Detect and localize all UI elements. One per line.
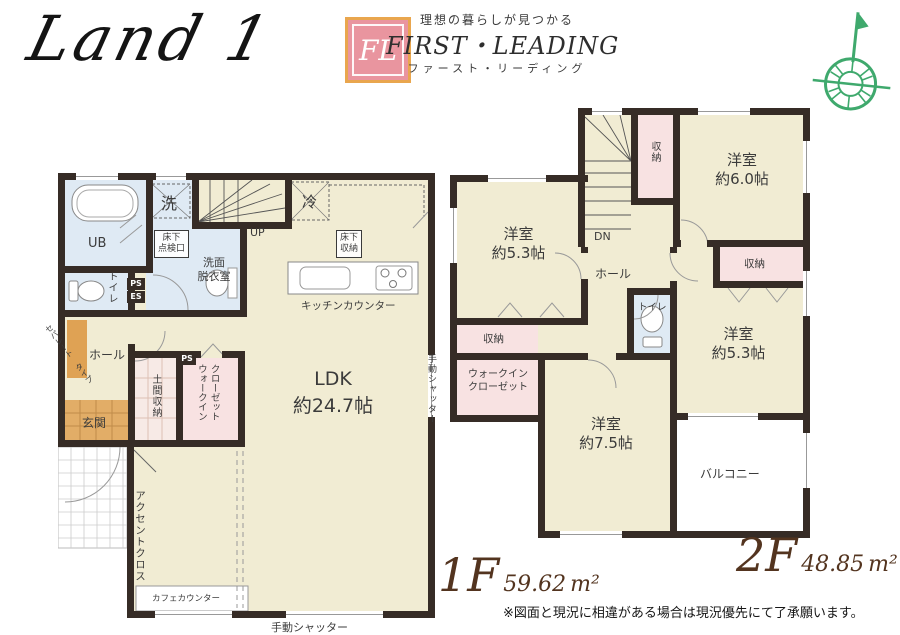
room-label-balcony: バルコニー [700, 465, 760, 482]
room-label-wic-2f: ウォークイン クローゼット [460, 369, 536, 394]
room-label-ldk: LDK 約24.7帖 [268, 366, 398, 419]
room-label-storage-right: 収納 [744, 256, 765, 271]
room-label-ub: UB [88, 236, 106, 251]
underfloor-hatch-label: 床下 点検口 [154, 230, 189, 258]
brand-name-en: FIRST・LEADING [386, 26, 608, 61]
room-label-toilet-2f: トイレ [638, 299, 667, 313]
room-label-entrance: 玄関 [82, 414, 106, 431]
es-shaft-label: ES [127, 291, 145, 303]
room-label-storage-top: 収納 [647, 141, 662, 163]
floor2-area-label: 2F48.85m² [736, 528, 898, 582]
floorplan-flyer: Land 1 FL 理想の暮らしが見つかる FIRST・LEADING ファース… [0, 0, 900, 635]
stairs-dn-label: DN [594, 230, 611, 243]
floor2-area-value: 48.85 [801, 552, 864, 577]
room-label-hall-1f: ホール [89, 346, 125, 363]
room-label-53jo-right: 洋室 約5.3帖 [686, 325, 791, 363]
brand-name-ja: ファースト・リーディング [392, 60, 602, 76]
shutter-bottom-label: 手動シャッター [271, 619, 348, 635]
cafe-counter-label: カフェカウンター [152, 592, 220, 604]
kitchen-counter-label: キッチンカウンター [301, 298, 396, 313]
floor1-area-unit: m² [570, 572, 600, 597]
room-label-toilet-1f: トイレ [104, 271, 119, 304]
accent-cloth-label: アクセントクロス [133, 490, 148, 582]
shutter-right-label: 手動シャッター [425, 354, 438, 424]
room-label-6jo: 洋室 約6.0帖 [686, 151, 798, 189]
ps-shaft-label: PS [127, 278, 145, 290]
floor1-plan: UB 洗 洗面 脱衣室 床下 点検口 トイレ PS ES ホール セパレート タ… [58, 168, 435, 633]
room-label-washer: 洗 [161, 190, 177, 214]
room-label-storage-left: 収納 [483, 331, 504, 346]
room-label-75jo: 洋室 約7.5帖 [550, 415, 662, 453]
stairs-up-label: UP [250, 226, 265, 239]
room-label-laundry: 洗面 脱衣室 [188, 256, 240, 284]
plan-title: Land 1 [21, 2, 280, 75]
room-label-hall-2f: ホール [595, 265, 631, 282]
floor1-floor-number: 1F [438, 548, 499, 602]
room-label-doma-storage: 土間収納 [148, 374, 163, 418]
floor2-floor-number: 2F [736, 528, 797, 582]
floor1-area-label: 1F59.62m² [438, 548, 600, 602]
room-label-wic-1f: ウォークイン クローゼット [194, 364, 220, 438]
compass-icon [806, 0, 898, 118]
floor2-plan: 収納 洋室 約6.0帖 洋室 約5.3帖 DN ホール トイレ 収納 洋室 約5… [448, 103, 812, 545]
floor1-area-value: 59.62 [503, 572, 566, 597]
floor2-area-unit: m² [868, 552, 898, 577]
room-label-53jo-left: 洋室 約5.3帖 [466, 225, 571, 263]
disclaimer-text: ※図面と現況に相違がある場合は現況優先にて了承願います。 [503, 602, 864, 621]
fridge-label: 冷 [302, 191, 317, 212]
underfloor-storage-label: 床下 収納 [336, 230, 362, 258]
